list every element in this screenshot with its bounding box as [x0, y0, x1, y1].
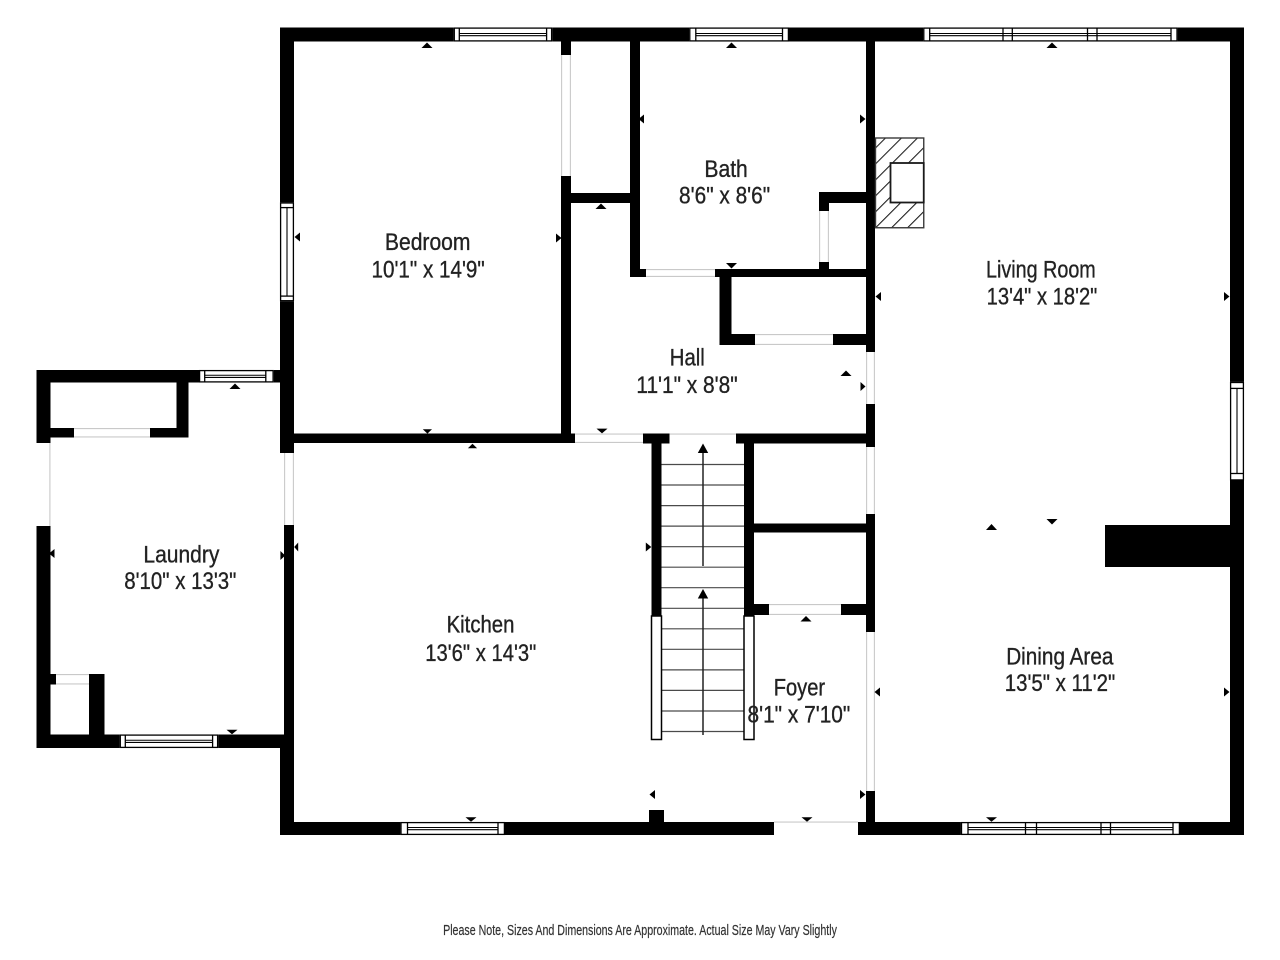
svg-text:Hall: Hall	[670, 345, 705, 372]
svg-text:8'1" x 7'10": 8'1" x 7'10"	[748, 702, 851, 729]
svg-text:13'4" x 18'2": 13'4" x 18'2"	[987, 283, 1098, 310]
svg-text:11'1" x 8'8": 11'1" x 8'8"	[636, 372, 737, 399]
svg-text:13'5" x 11'2": 13'5" x 11'2"	[1005, 670, 1115, 697]
svg-text:Living Room: Living Room	[986, 256, 1096, 283]
svg-text:Bedroom: Bedroom	[385, 229, 471, 256]
svg-text:13'6" x 14'3": 13'6" x 14'3"	[425, 640, 536, 667]
svg-text:Laundry: Laundry	[143, 541, 219, 568]
svg-text:8'10" x 13'3": 8'10" x 13'3"	[124, 568, 236, 595]
svg-text:10'1" x 14'9": 10'1" x 14'9"	[372, 257, 485, 284]
svg-text:Please Note, Sizes And Dimensi: Please Note, Sizes And Dimensions Are Ap…	[443, 923, 837, 939]
svg-text:Dining Area: Dining Area	[1006, 643, 1114, 670]
svg-text:Kitchen: Kitchen	[447, 611, 515, 638]
svg-text:Bath: Bath	[704, 156, 747, 183]
svg-text:8'6" x 8'6": 8'6" x 8'6"	[679, 183, 770, 210]
svg-text:Foyer: Foyer	[774, 675, 825, 702]
